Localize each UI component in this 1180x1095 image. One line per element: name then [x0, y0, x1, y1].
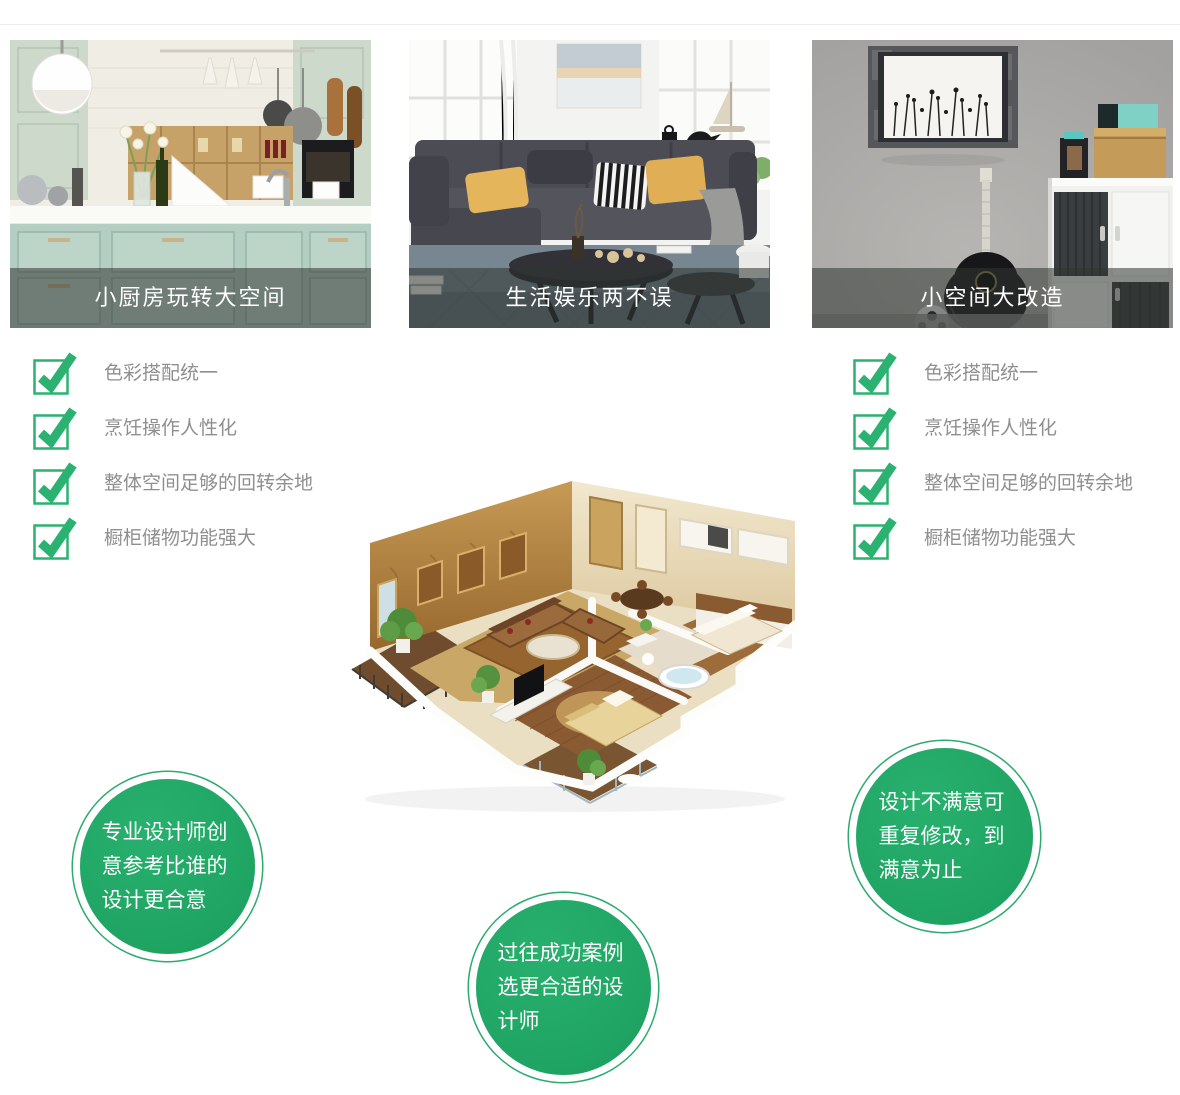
checklist-item-label: 橱柜储物功能强大 — [924, 523, 1076, 550]
checklist-item: 橱柜储物功能强大 — [33, 509, 313, 564]
benefit-bubble-revisions: 设计不满意可重复修改，到满意为止 — [856, 748, 1033, 925]
checked-checkbox-icon — [33, 404, 79, 450]
page: 小厨房玩转大空间 — [0, 0, 1180, 1095]
bubble-text: 过往成功案例选更合适的设计师 — [498, 937, 630, 1039]
checklist-item-label: 烹饪操作人性化 — [924, 413, 1057, 440]
feature-card-small-space[interactable]: 小空间大改造 — [812, 40, 1173, 328]
checklist-item: 烹饪操作人性化 — [33, 399, 313, 454]
feature-card-kitchen[interactable]: 小厨房玩转大空间 — [10, 40, 371, 328]
checklist-item-label: 色彩搭配统一 — [924, 358, 1038, 385]
checked-checkbox-icon — [853, 459, 899, 505]
checklist-item: 整体空间足够的回转余地 — [33, 454, 313, 509]
feature-card-living-room[interactable]: 生活娱乐两不误 — [409, 40, 770, 328]
checklist-item-label: 橱柜储物功能强大 — [104, 523, 256, 550]
checklist-item-label: 整体空间足够的回转余地 — [104, 468, 313, 495]
checklist-left: 色彩搭配统一 烹饪操作人性化 整体空间足够的回转余地 橱柜储物功能强大 — [33, 344, 313, 564]
benefit-bubble-cases: 过往成功案例选更合适的设计师 — [476, 900, 651, 1075]
checklist-item-label: 整体空间足够的回转余地 — [924, 468, 1133, 495]
checklist-item: 烹饪操作人性化 — [853, 399, 1133, 454]
checklist-item: 整体空间足够的回转余地 — [853, 454, 1133, 509]
card-caption: 小空间大改造 — [812, 268, 1173, 328]
benefit-bubble-designer: 专业设计师创意参考比谁的设计更合意 — [80, 779, 255, 954]
checklist-item: 橱柜储物功能强大 — [853, 509, 1133, 564]
checked-checkbox-icon — [853, 514, 899, 560]
section-divider — [0, 24, 1180, 25]
checklist-item: 色彩搭配统一 — [33, 344, 313, 399]
card-caption: 生活娱乐两不误 — [409, 268, 770, 328]
bubble-text: 设计不满意可重复修改，到满意为止 — [879, 786, 1011, 888]
checklist-item-label: 烹饪操作人性化 — [104, 413, 237, 440]
isometric-3d-apartment-rendering — [340, 473, 800, 813]
checked-checkbox-icon — [853, 404, 899, 450]
checked-checkbox-icon — [853, 349, 899, 395]
checked-checkbox-icon — [33, 514, 79, 560]
checklist-item-label: 色彩搭配统一 — [104, 358, 218, 385]
checked-checkbox-icon — [33, 459, 79, 505]
checklist-right: 色彩搭配统一 烹饪操作人性化 整体空间足够的回转余地 橱柜储物功能强大 — [853, 344, 1133, 564]
checked-checkbox-icon — [33, 349, 79, 395]
checklist-item: 色彩搭配统一 — [853, 344, 1133, 399]
bubble-text: 专业设计师创意参考比谁的设计更合意 — [102, 816, 234, 918]
card-caption: 小厨房玩转大空间 — [10, 268, 371, 328]
